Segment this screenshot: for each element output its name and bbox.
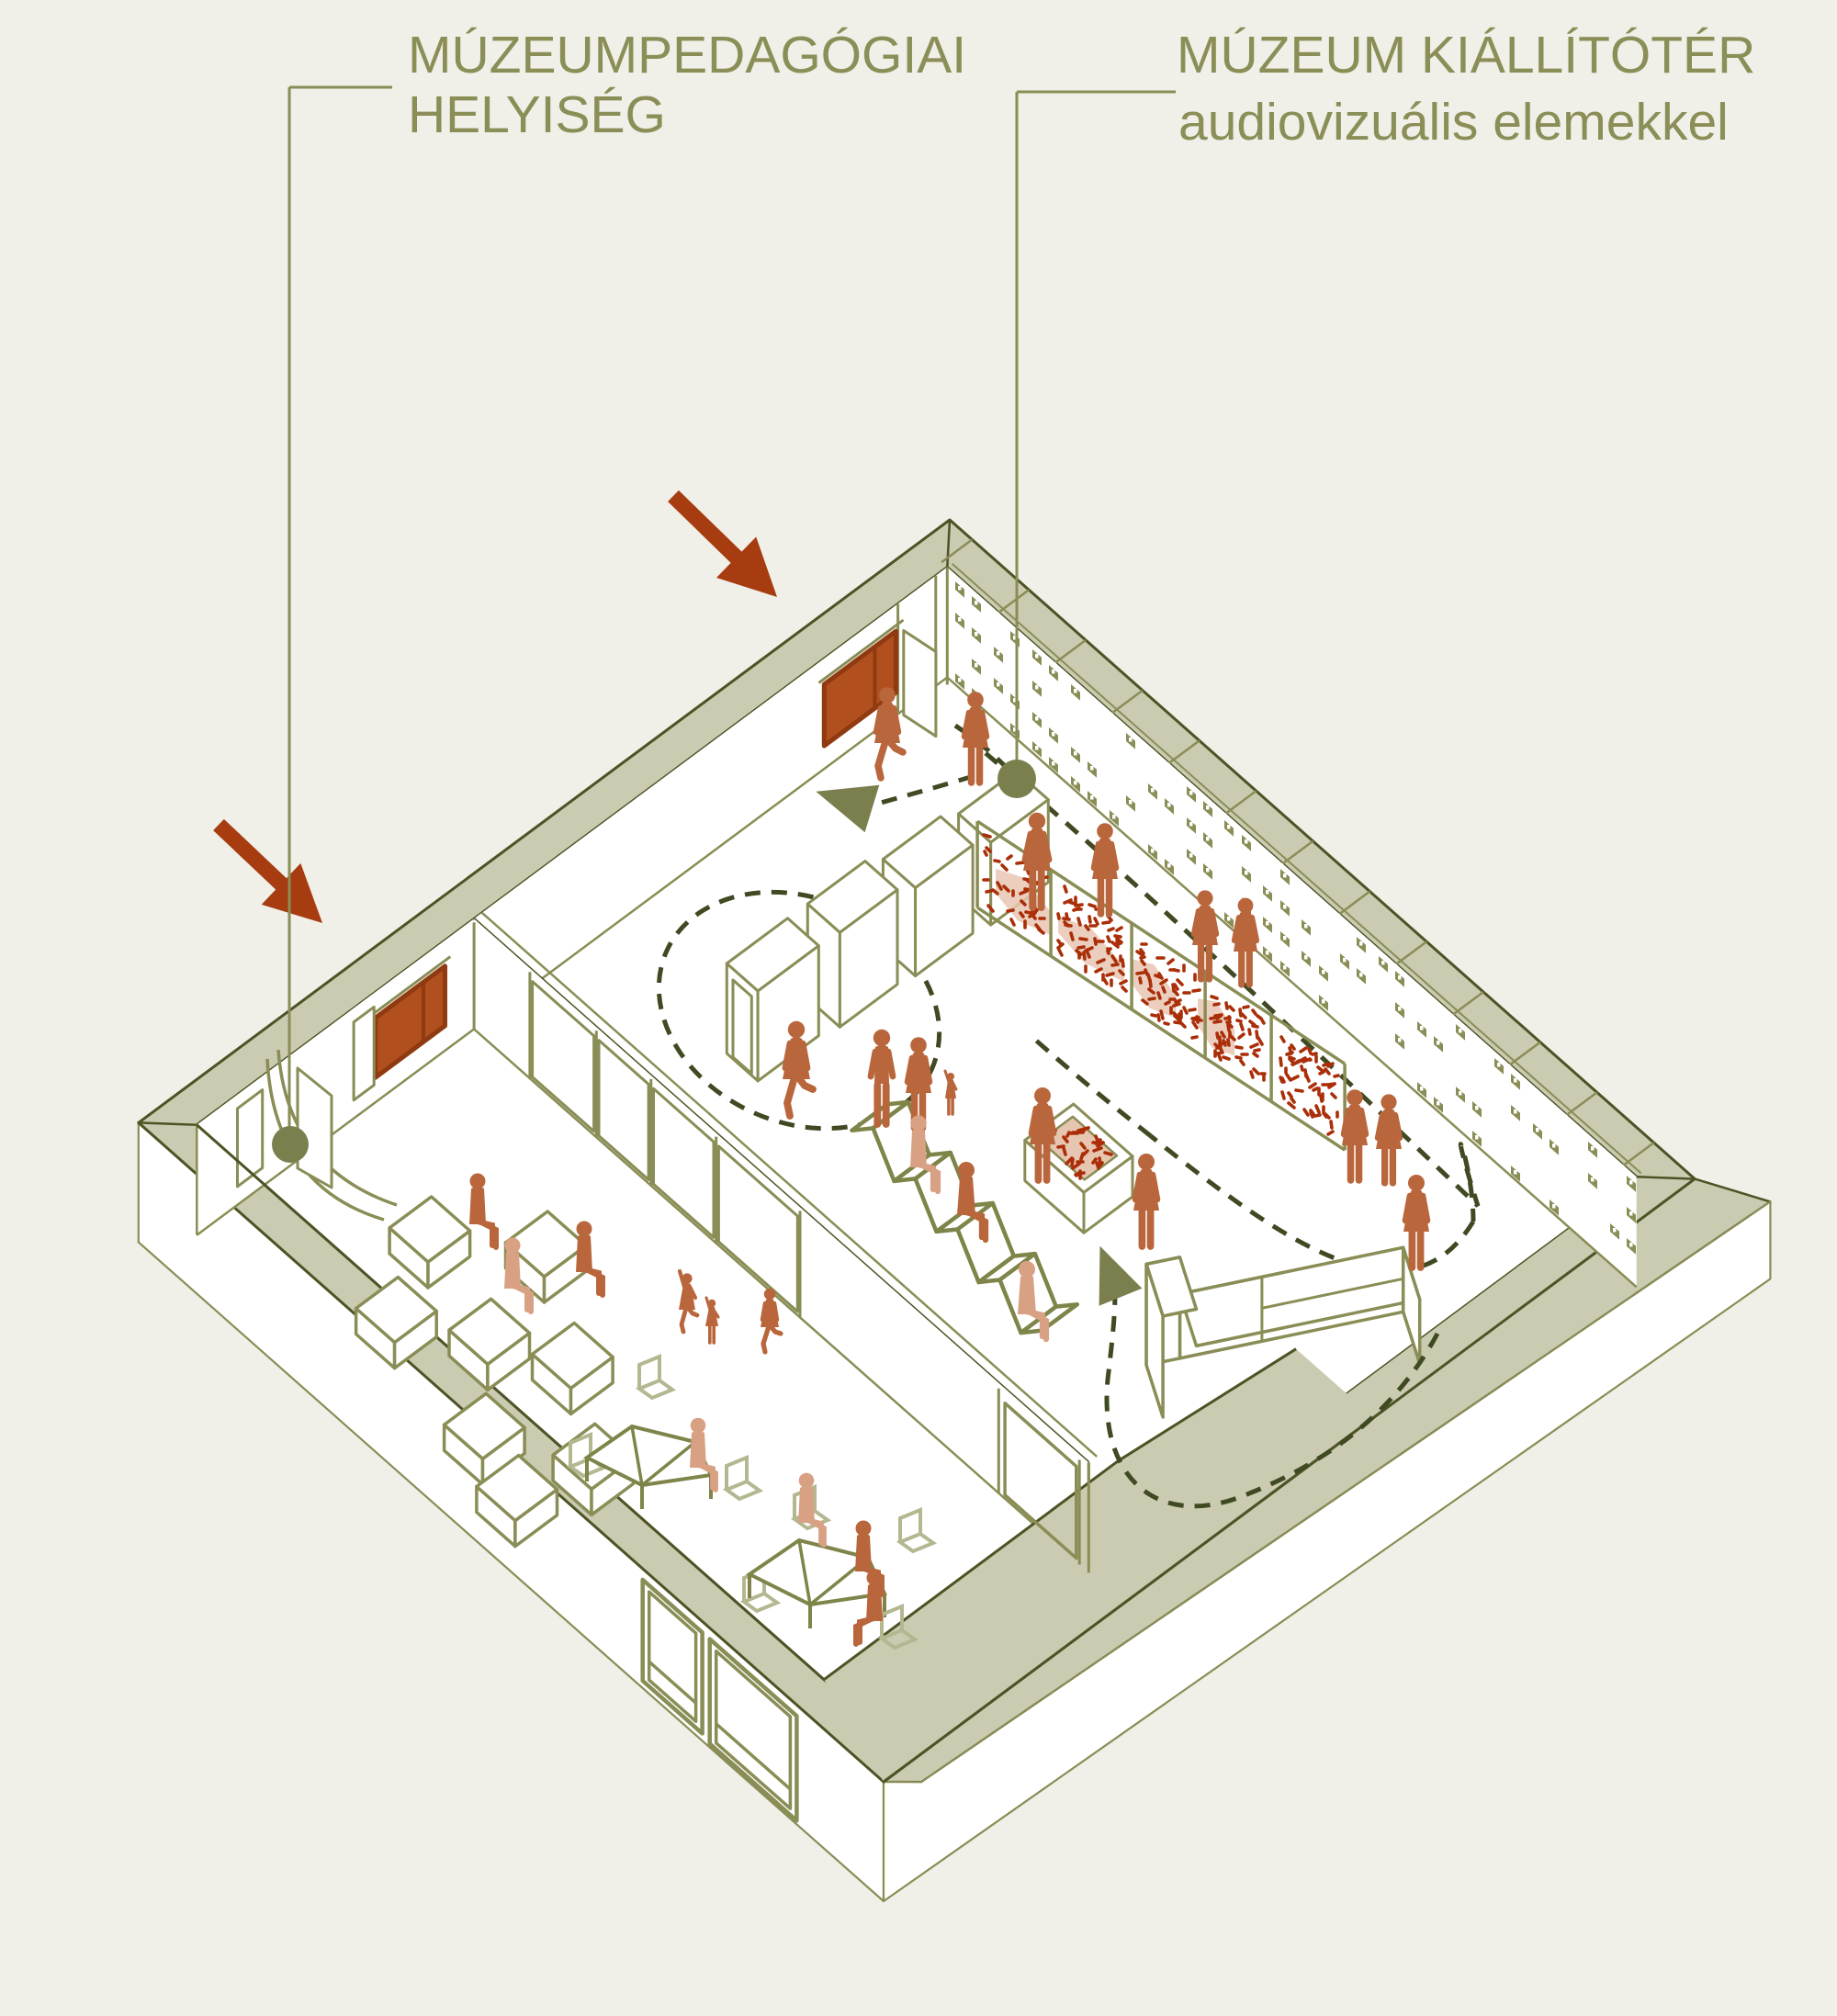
- svg-text:MÚZEUM KIÁLLÍTÓTÉR: MÚZEUM KIÁLLÍTÓTÉR: [1177, 26, 1755, 84]
- svg-text:MÚZEUMPEDAGÓGIAI: MÚZEUMPEDAGÓGIAI: [408, 26, 966, 84]
- svg-text:HELYISÉG: HELYISÉG: [408, 85, 666, 144]
- svg-text:audiovizuális elemekkel: audiovizuális elemekkel: [1178, 93, 1729, 152]
